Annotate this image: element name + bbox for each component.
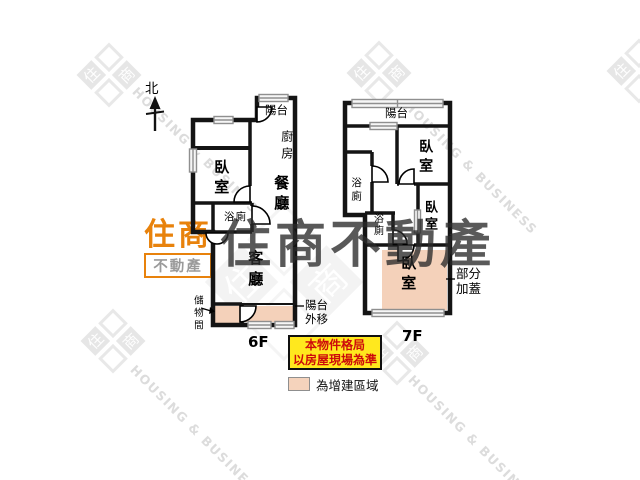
annotation-addition: 部分加蓋 (456, 266, 481, 296)
room-label-balcony-7f: 陽台 (385, 107, 408, 120)
annotation-line: 部分 (456, 266, 481, 281)
room-label-bath-upper: 浴廁 (350, 177, 362, 204)
annotation-line: 加蓋 (456, 281, 481, 296)
room-label-dining: 餐廳 (272, 175, 289, 215)
annotation-balcony-shift: 陽台外移 (305, 299, 328, 326)
room-label-bedroom-main: 臥室 (399, 255, 416, 295)
note-line1: 本物件格局 (305, 338, 365, 352)
floorplan-drawing (0, 0, 640, 480)
floorplan-page: HOUSING & BUSINESS HOUSING & BUSINESS HO… (0, 0, 640, 480)
room-label-bedroom-top: 臥室 (417, 139, 433, 177)
legend-annex-label: 為增建區域 (316, 375, 379, 394)
annotation-storage: 儲物間 (191, 295, 202, 333)
note-line2: 以房屋現場為準 (293, 353, 377, 367)
annotation-line: 外移 (305, 312, 328, 326)
annotation-line: 陽台 (305, 298, 328, 312)
room-label-living: 客廳 (246, 250, 263, 292)
north-arrow-icon (146, 96, 164, 131)
legend-annex-swatch (288, 377, 310, 391)
room-label-bedroom-mid: 臥室 (421, 200, 436, 234)
room-label-bedroom-6f: 臥室 (212, 159, 229, 199)
room-label-bath-lower: 浴廁 (371, 213, 383, 237)
room-label-bath-6f: 浴廁 (224, 211, 247, 223)
floor-label-6f: 6F (248, 334, 269, 351)
north-label: 北 (145, 82, 159, 98)
floor-label-7f: 7F (402, 328, 423, 345)
room-label-balcony-6f: 陽台 (265, 104, 288, 117)
room-label-kitchen: 廚房 (279, 130, 293, 164)
disclaimer-note: 本物件格局以房屋現場為準 (288, 335, 382, 370)
